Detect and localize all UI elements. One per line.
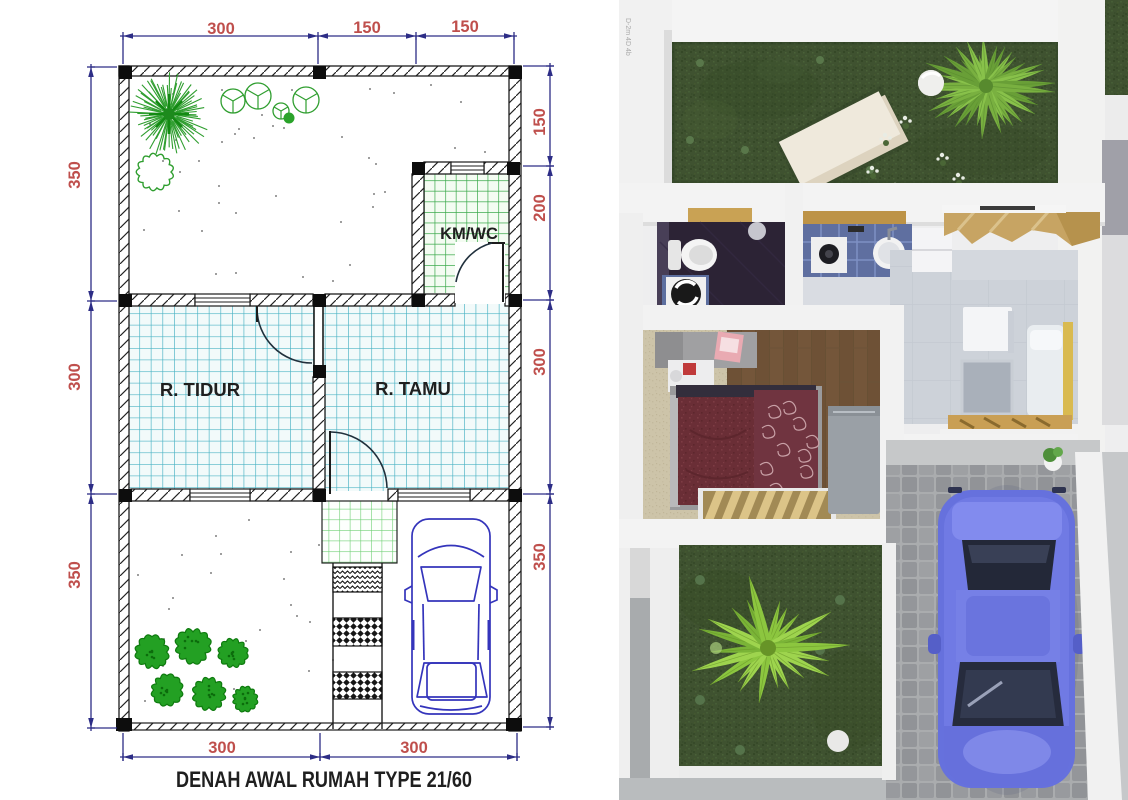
svg-text:300: 300: [208, 739, 236, 757]
svg-text:350: 350: [531, 543, 549, 571]
svg-text:350: 350: [66, 161, 84, 189]
svg-text:150: 150: [531, 108, 549, 136]
svg-text:150: 150: [353, 19, 381, 37]
svg-text:R. TIDUR: R. TIDUR: [160, 379, 240, 400]
svg-text:300: 300: [66, 363, 84, 391]
svg-text:D-2m 4D 4b: D-2m 4D 4b: [624, 18, 631, 56]
svg-text:DENAH AWAL RUMAH TYPE 21/60: DENAH AWAL RUMAH TYPE 21/60: [176, 767, 472, 792]
svg-text:350: 350: [66, 561, 84, 589]
svg-text:300: 300: [400, 739, 428, 757]
svg-text:KM/WC: KM/WC: [440, 225, 498, 243]
svg-text:200: 200: [531, 194, 549, 222]
svg-text:300: 300: [531, 348, 549, 376]
svg-text:150: 150: [451, 18, 479, 36]
svg-text:300: 300: [207, 20, 235, 38]
svg-text:R. TAMU: R. TAMU: [375, 378, 451, 399]
